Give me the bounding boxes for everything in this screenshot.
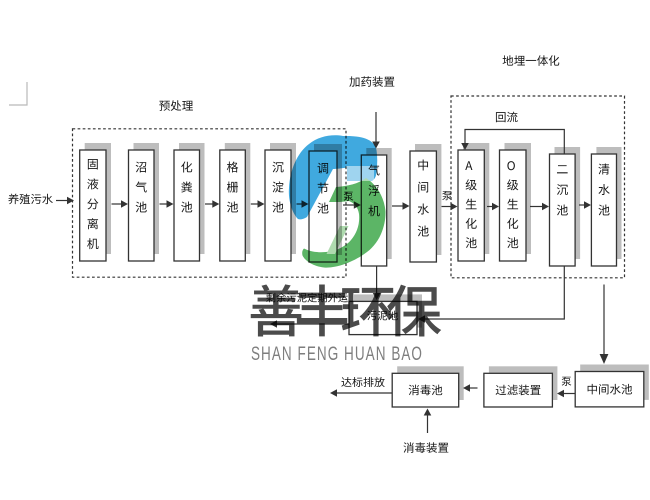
svg-text:SHAN FENG HUAN BAO: SHAN FENG HUAN BAO — [251, 343, 423, 365]
